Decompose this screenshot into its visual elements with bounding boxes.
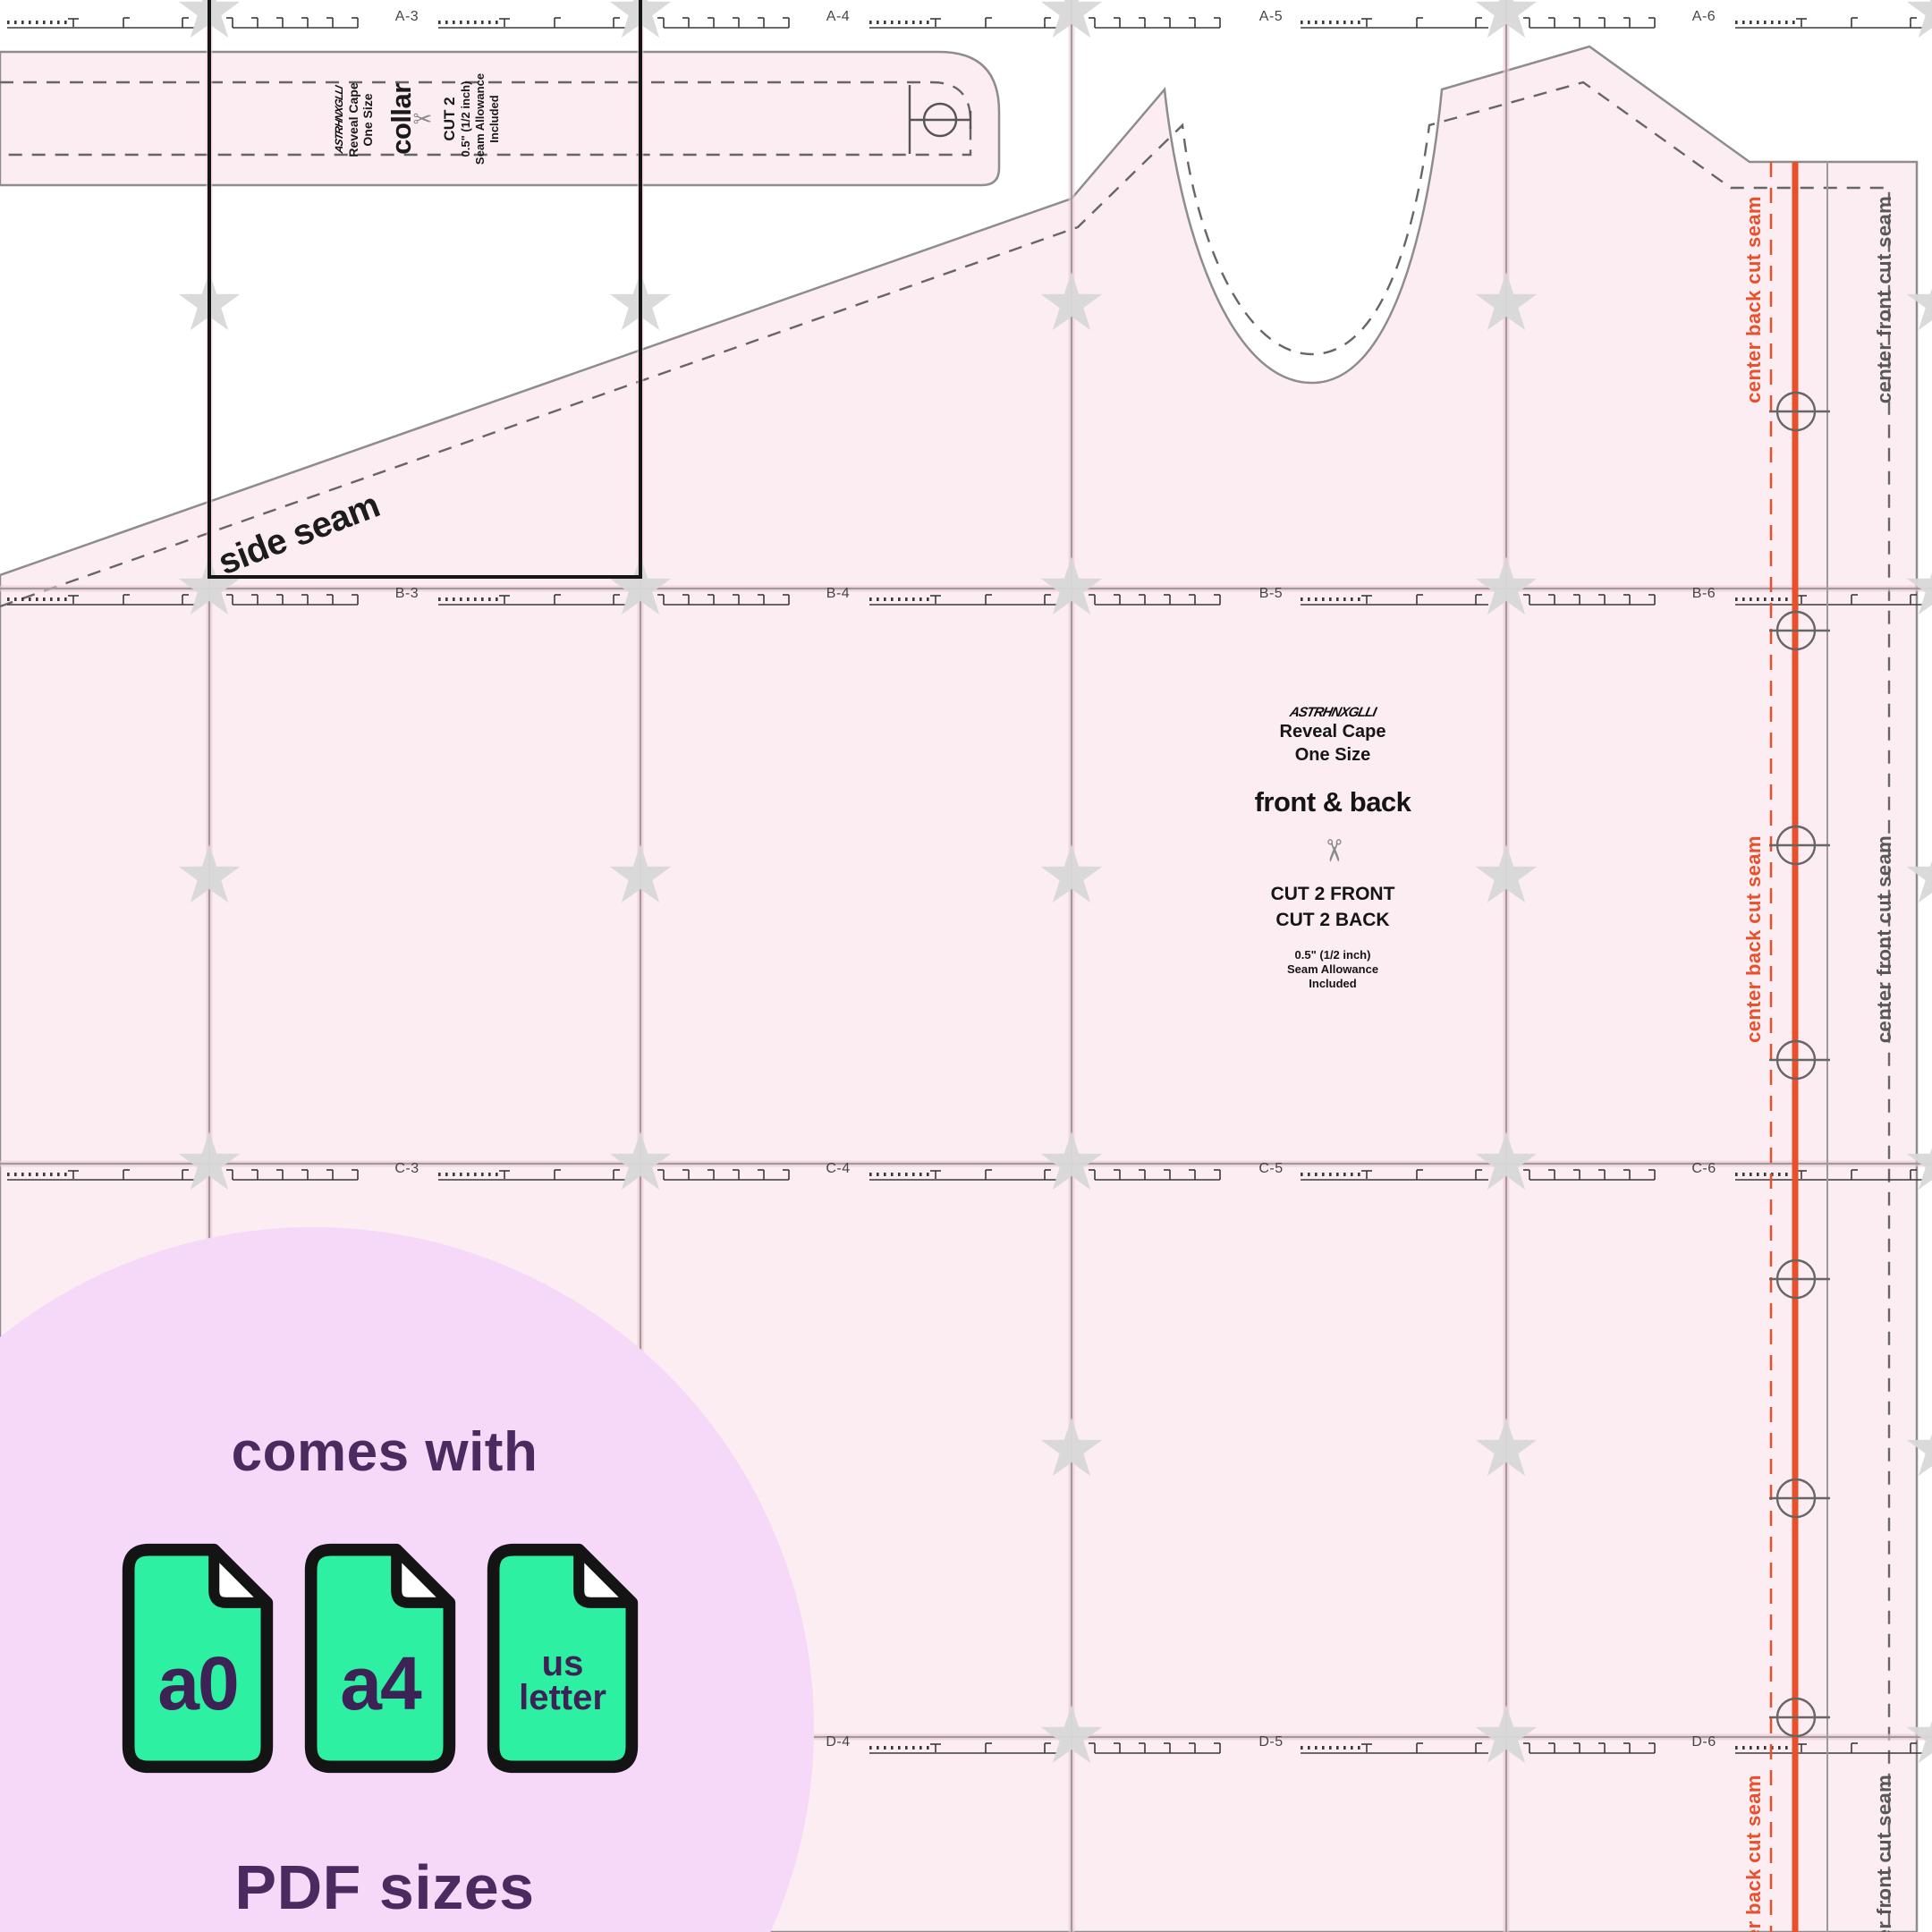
- page-tile-label: B-5: [1259, 586, 1283, 602]
- brand-logo: ASTRHNXGLLI: [1188, 705, 1478, 720]
- page-tile-label: A-4: [826, 9, 850, 25]
- seam-allowance-note: Seam Allowance: [1190, 962, 1476, 977]
- cut-front-instruction: CUT 2 FRONT: [1190, 881, 1476, 907]
- page-tile-label: B-4: [826, 586, 850, 602]
- center-back-seam-label: center back cut seam: [1742, 1731, 1766, 1932]
- center-front-seam-label: center front cut seam: [1873, 1731, 1896, 1932]
- promo-heading: comes with: [206, 1420, 563, 1484]
- pattern-name: Reveal Cape: [1190, 720, 1476, 743]
- size-label: One Size: [1190, 743, 1476, 767]
- paper-size-icon-a0: a0: [116, 1537, 279, 1780]
- page-tile-label: D-6: [1691, 1734, 1716, 1750]
- page-tile-label: B-3: [395, 586, 419, 602]
- center-back-seam-label: center back cut seam: [1742, 792, 1766, 1087]
- piece-name: front & back: [1190, 786, 1476, 818]
- brand-logo: ASTRHNXGLLI: [333, 85, 345, 154]
- page-tile-label: C-5: [1258, 1161, 1283, 1177]
- cut-back-instruction: CUT 2 BACK: [1190, 907, 1476, 933]
- scissors-icon: ✂: [1315, 838, 1351, 864]
- page-tile-label: D-5: [1258, 1734, 1283, 1750]
- collar-seam-allowance-note: 0.5" (1/2 inch) Seam Allowance Included: [422, 61, 538, 177]
- page-tile-label: A-5: [1259, 9, 1283, 25]
- center-back-seam-label: center back cut seam: [1742, 152, 1766, 447]
- page-tile-label: D-4: [826, 1734, 850, 1750]
- size-label-a0: a0: [116, 1606, 279, 1762]
- seam-allowance-note: Included: [1190, 977, 1476, 991]
- page-tile-label: B-6: [1692, 586, 1716, 602]
- page-tile-label: A-3: [395, 9, 419, 25]
- page-tile-label: C-3: [394, 1161, 419, 1177]
- pattern-preview-canvas: ASTRHNXGLLI Reveal Cape One Size collar …: [0, 0, 1932, 1932]
- paper-size-icon-us-letter: us letter: [481, 1537, 644, 1780]
- front-back-piece-label-block: ASTRHNXGLLI Reveal Cape One Size front &…: [1190, 705, 1476, 992]
- promo-caption: PDF sizes: [228, 1851, 541, 1923]
- seam-allowance-value: 0.5" (1/2 inch): [1190, 948, 1476, 962]
- page-tile-label: C-6: [1691, 1161, 1716, 1177]
- page-tile-label: C-4: [826, 1161, 850, 1177]
- center-front-seam-label: center front cut seam: [1873, 152, 1896, 447]
- paper-size-icon-a4: a4: [299, 1537, 462, 1780]
- center-front-seam-label: center front cut seam: [1873, 792, 1896, 1087]
- size-label-a4: a4: [299, 1606, 462, 1762]
- size-label-us-letter: us letter: [481, 1599, 644, 1762]
- page-tile-label: A-6: [1692, 9, 1716, 25]
